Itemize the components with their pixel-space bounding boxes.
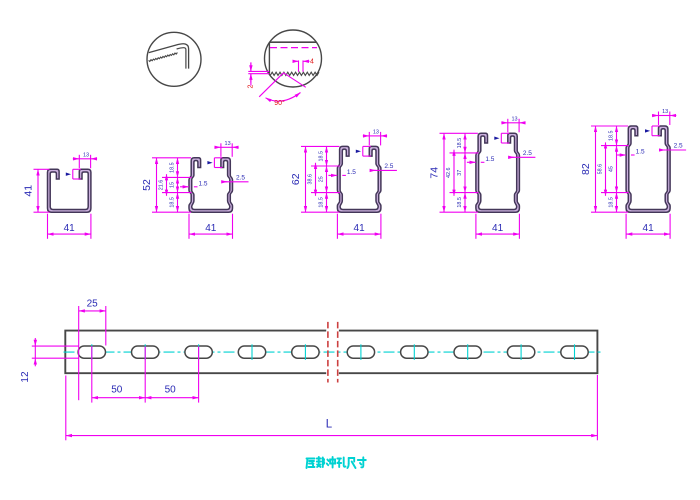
svg-text:45: 45 bbox=[608, 166, 614, 172]
svg-text:82: 82 bbox=[580, 163, 592, 175]
svg-text:L: L bbox=[326, 419, 333, 431]
svg-text:2: 2 bbox=[248, 84, 255, 88]
svg-text:41: 41 bbox=[64, 223, 76, 234]
svg-text:21.6: 21.6 bbox=[158, 180, 164, 191]
svg-text:50: 50 bbox=[111, 385, 123, 396]
svg-text:13: 13 bbox=[225, 141, 231, 147]
svg-text:18.5: 18.5 bbox=[608, 197, 614, 208]
svg-text:13: 13 bbox=[511, 116, 517, 122]
svg-text:2.5: 2.5 bbox=[384, 163, 393, 170]
svg-text:25: 25 bbox=[87, 299, 99, 310]
svg-text:4: 4 bbox=[310, 58, 314, 65]
svg-text:18.5: 18.5 bbox=[457, 138, 463, 149]
svg-text:58.6: 58.6 bbox=[597, 164, 603, 175]
svg-text:38.6: 38.6 bbox=[307, 174, 313, 185]
svg-text:37: 37 bbox=[457, 170, 463, 176]
svg-text:42.6: 42.6 bbox=[446, 168, 452, 179]
svg-text:90°: 90° bbox=[274, 99, 285, 107]
svg-text:1.5: 1.5 bbox=[199, 180, 208, 187]
svg-text:12: 12 bbox=[20, 371, 31, 383]
svg-text:13: 13 bbox=[662, 109, 668, 115]
svg-text:18.5: 18.5 bbox=[318, 197, 324, 208]
svg-text:74: 74 bbox=[429, 167, 441, 179]
svg-text:41: 41 bbox=[354, 223, 366, 234]
svg-text:18.5: 18.5 bbox=[169, 162, 175, 173]
svg-text:2.5: 2.5 bbox=[523, 150, 532, 157]
svg-text:18.5: 18.5 bbox=[169, 197, 175, 208]
svg-text:18.5: 18.5 bbox=[608, 131, 614, 142]
svg-text:41: 41 bbox=[23, 185, 35, 197]
svg-text:50: 50 bbox=[165, 385, 177, 396]
svg-text:41: 41 bbox=[643, 223, 655, 234]
svg-text:18.5: 18.5 bbox=[457, 197, 463, 208]
svg-text:13: 13 bbox=[373, 129, 379, 135]
svg-text:1.5: 1.5 bbox=[347, 169, 356, 176]
svg-text:62: 62 bbox=[290, 173, 302, 185]
svg-text:18.5: 18.5 bbox=[318, 151, 324, 162]
svg-text:2.5: 2.5 bbox=[674, 143, 683, 150]
svg-text:52: 52 bbox=[141, 179, 153, 191]
svg-text:41: 41 bbox=[205, 223, 217, 234]
svg-text:1.5: 1.5 bbox=[485, 156, 494, 163]
svg-text:25: 25 bbox=[318, 176, 324, 182]
svg-text:13: 13 bbox=[83, 152, 89, 158]
svg-text:2.5: 2.5 bbox=[236, 174, 245, 181]
svg-text:15: 15 bbox=[169, 182, 175, 188]
svg-text:1.5: 1.5 bbox=[636, 149, 645, 156]
svg-text:41: 41 bbox=[492, 223, 504, 234]
